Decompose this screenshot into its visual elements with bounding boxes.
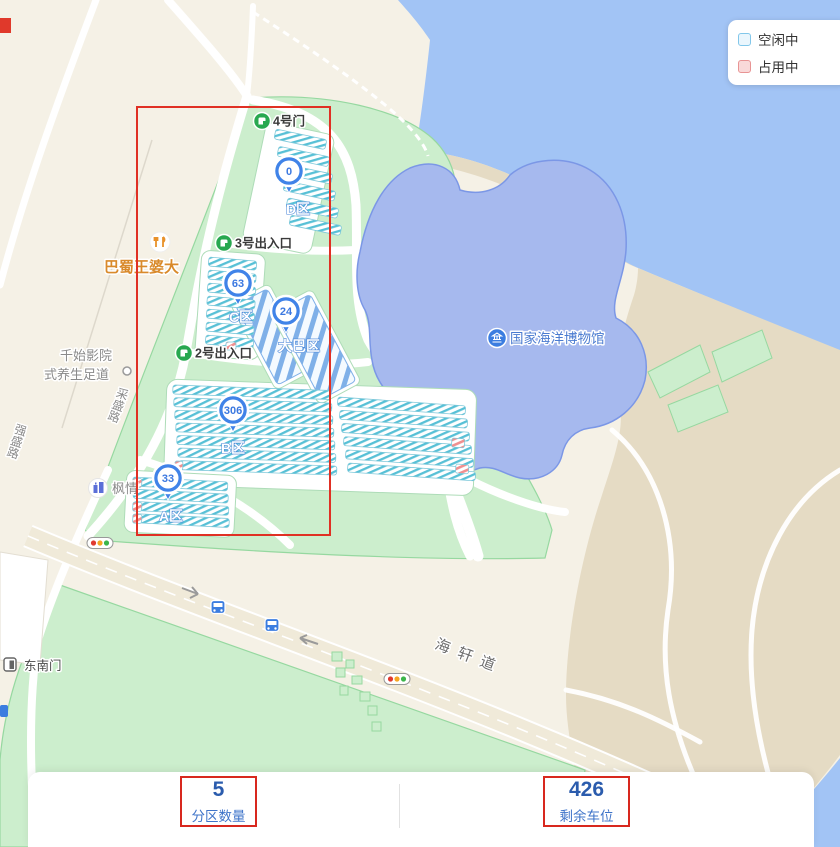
- stats-divider: [399, 784, 400, 828]
- stat-partition-count: 5 分区数量: [180, 776, 257, 827]
- svg-text:3号出入口: 3号出入口: [235, 236, 292, 251]
- gate-4[interactable]: 4号门: [254, 113, 305, 130]
- parking-map-page: 海轩道 采盛路 强盛路 巴蜀王婆大 千始影院 式养生足道 枫情 东南门: [0, 0, 840, 847]
- building-block: [0, 552, 48, 665]
- map-canvas[interactable]: 海轩道 采盛路 强盛路 巴蜀王婆大 千始影院 式养生足道 枫情 东南门: [0, 0, 840, 847]
- poi-fengqing[interactable]: 枫情: [89, 479, 139, 498]
- edge-marker-partial: [0, 18, 11, 33]
- door-icon: [10, 661, 15, 670]
- gate-2[interactable]: 2号出入口: [176, 345, 252, 362]
- svg-text:0: 0: [286, 166, 292, 178]
- zone-label-a: A区: [159, 508, 183, 524]
- bus-icon: [265, 619, 279, 632]
- svg-text:枫情: 枫情: [112, 481, 138, 496]
- svg-text:24: 24: [280, 306, 293, 318]
- restaurant-icon: [150, 232, 170, 252]
- gate-3[interactable]: 3号出入口: [216, 235, 292, 252]
- partition-count-value: 5: [213, 778, 225, 802]
- remaining-spots-label: 剩余车位: [560, 805, 614, 825]
- stats-bar: [28, 772, 814, 847]
- svg-text:东南门: 东南门: [24, 658, 62, 673]
- zone-label-bus: 大巴区: [278, 338, 320, 354]
- svg-text:千始影院: 千始影院: [60, 348, 112, 363]
- remaining-spots-value: 426: [569, 778, 604, 802]
- bus-icon-partial: [0, 705, 8, 717]
- svg-text:4号门: 4号门: [273, 114, 305, 129]
- svg-text:国家海洋博物馆: 国家海洋博物馆: [510, 330, 605, 346]
- map-legend: 空闲中 占用中: [728, 20, 840, 85]
- poi-dot-icon: [123, 367, 131, 375]
- traffic-light-icon: [384, 674, 410, 685]
- free-swatch-icon: [738, 33, 751, 46]
- svg-text:63: 63: [232, 278, 244, 290]
- traffic-light-icon: [87, 538, 113, 549]
- legend-item-occupied[interactable]: 占用中: [738, 56, 838, 76]
- occupied-swatch-icon: [738, 60, 751, 73]
- zone-label-d: D区: [286, 201, 310, 217]
- stat-remaining-spots: 426 剩余车位: [543, 776, 630, 827]
- legend-occupied-label: 占用中: [758, 56, 799, 76]
- legend-free-label: 空闲中: [758, 29, 799, 49]
- svg-text:式养生足道: 式养生足道: [44, 367, 109, 382]
- bus-icon: [211, 601, 225, 614]
- svg-text:2号出入口: 2号出入口: [195, 346, 252, 361]
- svg-text:306: 306: [224, 405, 242, 417]
- zone-label-c: C区: [229, 309, 253, 325]
- poi-southeast-gate[interactable]: 东南门: [4, 658, 62, 673]
- zone-label-b: B区: [221, 440, 245, 456]
- svg-text:巴蜀王婆大: 巴蜀王婆大: [104, 258, 179, 276]
- svg-text:33: 33: [162, 473, 174, 485]
- partition-count-label: 分区数量: [192, 805, 246, 825]
- legend-item-free[interactable]: 空闲中: [738, 29, 838, 49]
- building-icon: [89, 479, 108, 498]
